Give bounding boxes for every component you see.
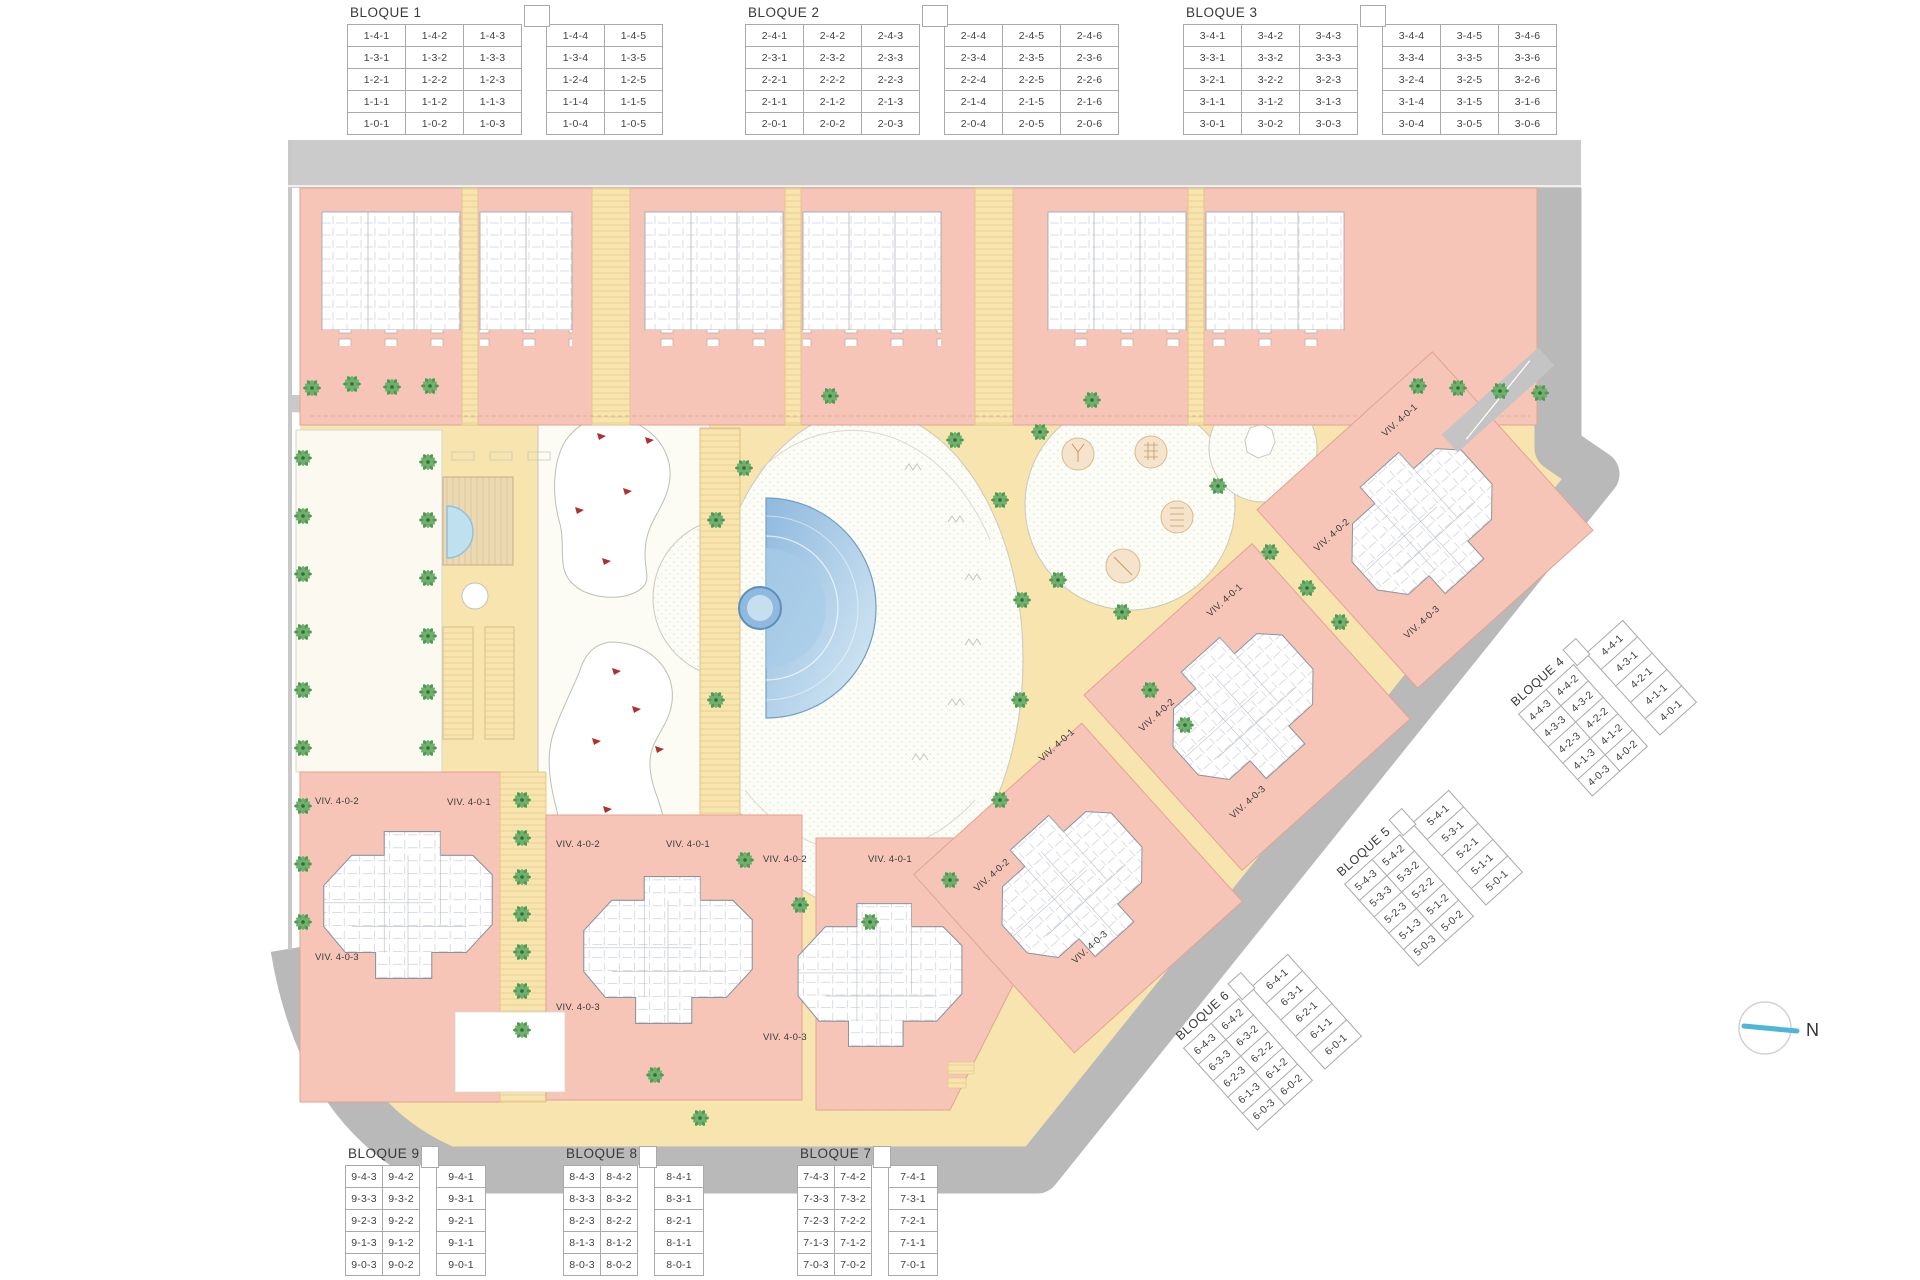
unit-table-row: 1-3-11-3-21-3-31-3-41-3-5: [348, 47, 663, 69]
legend-table-bloque-2: BLOQUE 22-4-12-4-22-4-32-4-42-4-52-4-62-…: [745, 5, 1119, 135]
unit-cell: 2-3-6: [1061, 47, 1119, 69]
unit-cell: 3-4-3: [1300, 25, 1358, 47]
unit-cell: 2-2-2: [804, 69, 862, 91]
unit-table-row: 7-2-37-2-27-2-1: [798, 1210, 938, 1232]
unit-cell: 2-1-6: [1061, 91, 1119, 113]
unit-cell: 3-1-2: [1242, 91, 1300, 113]
unit-table: 7-4-37-4-27-4-17-3-37-3-27-3-17-2-37-2-2…: [797, 1165, 938, 1276]
gap-cell: [638, 1210, 655, 1232]
unit-cell: 2-2-5: [1003, 69, 1061, 91]
unit-cell: 3-1-1: [1184, 91, 1242, 113]
viv-label: VIV. 4-0-2: [556, 839, 600, 850]
legend-gap-box: [873, 1146, 891, 1168]
unit-cell: 8-4-1: [655, 1166, 704, 1188]
unit-cell: 3-0-3: [1300, 113, 1358, 135]
unit-cell: 3-4-6: [1499, 25, 1557, 47]
unit-table-row: 9-1-39-1-29-1-1: [346, 1232, 486, 1254]
unit-cell: 9-4-2: [383, 1166, 420, 1188]
unit-cell: 1-4-3: [464, 25, 522, 47]
unit-table-row: 8-1-38-1-28-1-1: [564, 1232, 704, 1254]
unit-cell: 3-4-5: [1441, 25, 1499, 47]
unit-cell: 7-1-1: [889, 1232, 938, 1254]
unit-cell: 7-3-3: [798, 1188, 835, 1210]
unit-cell: 2-4-4: [945, 25, 1003, 47]
unit-cell: 3-3-2: [1242, 47, 1300, 69]
unit-cell: 7-3-2: [835, 1188, 872, 1210]
unit-table-row: 1-1-11-1-21-1-31-1-41-1-5: [348, 91, 663, 113]
unit-cell: 1-2-3: [464, 69, 522, 91]
unit-table: 1-4-11-4-21-4-31-4-41-4-51-3-11-3-21-3-3…: [347, 24, 663, 135]
gap-cell: [920, 91, 945, 113]
gap-cell: [920, 25, 945, 47]
unit-table-row: 8-3-38-3-28-3-1: [564, 1188, 704, 1210]
unit-table-row: 7-1-37-1-27-1-1: [798, 1232, 938, 1254]
unit-cell: 3-0-5: [1441, 113, 1499, 135]
unit-table-row: 3-3-13-3-23-3-33-3-43-3-53-3-6: [1184, 47, 1557, 69]
townhouse-band: [300, 188, 1537, 425]
unit-cell: 1-1-2: [406, 91, 464, 113]
unit-cell: 2-4-6: [1061, 25, 1119, 47]
unit-cell: 2-0-2: [804, 113, 862, 135]
gap-cell: [420, 1254, 437, 1276]
unit-table-row: 7-0-37-0-27-0-1: [798, 1254, 938, 1276]
unit-cell: 2-1-2: [804, 91, 862, 113]
unit-cell: 9-3-2: [383, 1188, 420, 1210]
unit-table-row: 2-2-12-2-22-2-32-2-42-2-52-2-6: [746, 69, 1119, 91]
unit-cell: 7-0-2: [835, 1254, 872, 1276]
unit-cell: 1-4-4: [547, 25, 605, 47]
gap-cell: [522, 113, 547, 135]
unit-cell: 7-3-1: [889, 1188, 938, 1210]
unit-cell: 3-0-2: [1242, 113, 1300, 135]
unit-cell: 3-3-4: [1383, 47, 1441, 69]
unit-cell: 3-2-4: [1383, 69, 1441, 91]
unit-cell: 7-4-1: [889, 1166, 938, 1188]
unit-cell: 2-4-5: [1003, 25, 1061, 47]
unit-cell: 1-3-2: [406, 47, 464, 69]
unit-cell: 8-4-3: [564, 1166, 601, 1188]
unit-cell: 1-2-1: [348, 69, 406, 91]
unit-table: 3-4-13-4-23-4-33-4-43-4-53-4-63-3-13-3-2…: [1183, 24, 1557, 135]
unit-cell: 2-1-1: [746, 91, 804, 113]
unit-table-row: 2-0-12-0-22-0-32-0-42-0-52-0-6: [746, 113, 1119, 135]
gap-cell: [638, 1232, 655, 1254]
unit-cell: 3-1-6: [1499, 91, 1557, 113]
unit-table-row: 7-3-37-3-27-3-1: [798, 1188, 938, 1210]
unit-cell: 9-2-1: [437, 1210, 486, 1232]
viv-label: VIV. 4-0-3: [315, 952, 359, 963]
unit-cell: 8-0-2: [601, 1254, 638, 1276]
unit-table-row: 3-1-13-1-23-1-33-1-43-1-53-1-6: [1184, 91, 1557, 113]
unit-cell: 2-4-2: [804, 25, 862, 47]
unit-table-row: 9-4-39-4-29-4-1: [346, 1166, 486, 1188]
unit-cell: 1-0-2: [406, 113, 464, 135]
unit-cell: 9-3-3: [346, 1188, 383, 1210]
unit-cell: 1-1-5: [605, 91, 663, 113]
unit-cell: 3-2-2: [1242, 69, 1300, 91]
gap-cell: [522, 69, 547, 91]
unit-cell: 3-0-1: [1184, 113, 1242, 135]
legend-gap-box: [922, 5, 948, 27]
unit-table-row: 8-2-38-2-28-2-1: [564, 1210, 704, 1232]
unit-cell: 2-0-1: [746, 113, 804, 135]
unit-table-row: 1-2-11-2-21-2-31-2-41-2-5: [348, 69, 663, 91]
unit-table-row: 7-4-37-4-27-4-1: [798, 1166, 938, 1188]
unit-cell: 9-1-1: [437, 1232, 486, 1254]
gap-cell: [420, 1188, 437, 1210]
unit-cell: 9-0-2: [383, 1254, 420, 1276]
unit-cell: 1-3-1: [348, 47, 406, 69]
unit-cell: 7-0-1: [889, 1254, 938, 1276]
gap-cell: [638, 1254, 655, 1276]
unit-cell: 2-3-3: [862, 47, 920, 69]
unit-table-row: 3-0-13-0-23-0-33-0-43-0-53-0-6: [1184, 113, 1557, 135]
viv-label: VIV. 4-0-2: [763, 854, 807, 865]
gap-cell: [872, 1210, 889, 1232]
unit-table-row: 8-4-38-4-28-4-1: [564, 1166, 704, 1188]
unit-cell: 1-4-1: [348, 25, 406, 47]
unit-cell: 3-1-5: [1441, 91, 1499, 113]
unit-table-row: 2-3-12-3-22-3-32-3-42-3-52-3-6: [746, 47, 1119, 69]
gap-cell: [872, 1166, 889, 1188]
legend-table-bloque-9: BLOQUE 99-4-39-4-29-4-19-3-39-3-29-3-19-…: [345, 1146, 486, 1276]
gap-cell: [420, 1232, 437, 1254]
unit-cell: 7-2-2: [835, 1210, 872, 1232]
gap-cell: [522, 25, 547, 47]
unit-cell: 2-0-6: [1061, 113, 1119, 135]
unit-cell: 1-0-3: [464, 113, 522, 135]
unit-cell: 7-0-3: [798, 1254, 835, 1276]
unit-cell: 2-1-5: [1003, 91, 1061, 113]
unit-cell: 9-0-3: [346, 1254, 383, 1276]
gap-cell: [420, 1210, 437, 1232]
unit-table: 8-4-38-4-28-4-18-3-38-3-28-3-18-2-38-2-2…: [563, 1165, 704, 1276]
unit-cell: 9-4-3: [346, 1166, 383, 1188]
unit-cell: 9-4-1: [437, 1166, 486, 1188]
legend-gap-box: [524, 5, 550, 27]
unit-cell: 3-2-1: [1184, 69, 1242, 91]
unit-cell: 3-2-3: [1300, 69, 1358, 91]
unit-cell: 1-0-4: [547, 113, 605, 135]
viv-label: VIV. 4-0-2: [315, 796, 359, 807]
unit-cell: 3-3-5: [1441, 47, 1499, 69]
pergola-2: [485, 627, 514, 739]
unit-cell: 1-4-2: [406, 25, 464, 47]
unit-cell: 9-3-1: [437, 1188, 486, 1210]
unit-table-row: 3-2-13-2-23-2-33-2-43-2-53-2-6: [1184, 69, 1557, 91]
unit-cell: 8-0-3: [564, 1254, 601, 1276]
unit-cell: 3-4-4: [1383, 25, 1441, 47]
unit-cell: 7-4-3: [798, 1166, 835, 1188]
unit-table-row: 1-4-11-4-21-4-31-4-41-4-5: [348, 25, 663, 47]
gap-cell: [872, 1254, 889, 1276]
unit-cell: 9-2-2: [383, 1210, 420, 1232]
unit-cell: 1-0-1: [348, 113, 406, 135]
north-indicator: N: [1739, 1002, 1819, 1054]
unit-cell: 1-2-4: [547, 69, 605, 91]
viv-label: VIV. 4-0-1: [666, 839, 710, 850]
gap-cell: [872, 1232, 889, 1254]
gap-cell: [638, 1166, 655, 1188]
gap-cell: [920, 113, 945, 135]
unit-cell: 8-3-2: [601, 1188, 638, 1210]
gap-cell: [522, 91, 547, 113]
unit-cell: 2-4-1: [746, 25, 804, 47]
unit-cell: 9-2-3: [346, 1210, 383, 1232]
unit-cell: 2-3-4: [945, 47, 1003, 69]
unit-cell: 1-3-5: [605, 47, 663, 69]
gap-cell: [920, 69, 945, 91]
unit-cell: 8-4-2: [601, 1166, 638, 1188]
unit-table-row: 9-0-39-0-29-0-1: [346, 1254, 486, 1276]
gap-cell: [1358, 69, 1383, 91]
unit-cell: 9-0-1: [437, 1254, 486, 1276]
pavilion: [1245, 424, 1275, 458]
unit-cell: 3-3-6: [1499, 47, 1557, 69]
unit-cell: 1-1-1: [348, 91, 406, 113]
unit-cell: 2-2-3: [862, 69, 920, 91]
unit-cell: 1-4-5: [605, 25, 663, 47]
north-label: N: [1806, 1020, 1819, 1040]
gap-cell: [420, 1166, 437, 1188]
unit-cell: 1-3-4: [547, 47, 605, 69]
unit-cell: 8-3-3: [564, 1188, 601, 1210]
gap-cell: [1358, 25, 1383, 47]
gap-cell: [522, 47, 547, 69]
legend-table-bloque-8: BLOQUE 88-4-38-4-28-4-18-3-38-3-28-3-18-…: [563, 1146, 704, 1276]
viv-label: VIV. 4-0-1: [868, 854, 912, 865]
gap-cell: [872, 1188, 889, 1210]
unit-table-row: 1-0-11-0-21-0-31-0-41-0-5: [348, 113, 663, 135]
unit-cell: 7-1-2: [835, 1232, 872, 1254]
unit-table-row: 9-2-39-2-29-2-1: [346, 1210, 486, 1232]
unit-cell: 8-2-2: [601, 1210, 638, 1232]
unit-cell: 3-2-6: [1499, 69, 1557, 91]
unit-table-row: 2-4-12-4-22-4-32-4-42-4-52-4-6: [746, 25, 1119, 47]
block-table-title: BLOQUE 7: [800, 1146, 938, 1161]
unit-cell: 7-1-3: [798, 1232, 835, 1254]
legend-table-bloque-1: BLOQUE 11-4-11-4-21-4-31-4-41-4-51-3-11-…: [347, 5, 663, 135]
unit-cell: 2-0-3: [862, 113, 920, 135]
unit-cell: 9-1-2: [383, 1232, 420, 1254]
gap-cell: [1358, 91, 1383, 113]
legend-table-bloque-3: BLOQUE 33-4-13-4-23-4-33-4-43-4-53-4-63-…: [1183, 5, 1557, 135]
gap-cell: [920, 47, 945, 69]
unit-cell: 1-1-3: [464, 91, 522, 113]
unit-table-row: 9-3-39-3-29-3-1: [346, 1188, 486, 1210]
legend-gap-box: [639, 1146, 657, 1168]
viv-label: VIV. 4-0-3: [556, 1002, 600, 1013]
gap-cell: [1358, 113, 1383, 135]
block-table-title: BLOQUE 8: [566, 1146, 704, 1161]
unit-cell: 3-1-4: [1383, 91, 1441, 113]
fountain-small: [462, 583, 488, 609]
unit-cell: 2-3-5: [1003, 47, 1061, 69]
unit-cell: 8-1-3: [564, 1232, 601, 1254]
unit-cell: 1-0-5: [605, 113, 663, 135]
unit-cell: 8-2-3: [564, 1210, 601, 1232]
unit-cell: 3-0-4: [1383, 113, 1441, 135]
unit-cell: 7-2-1: [889, 1210, 938, 1232]
unit-table-row: 8-0-38-0-28-0-1: [564, 1254, 704, 1276]
unit-cell: 2-3-2: [804, 47, 862, 69]
unit-cell: 3-4-1: [1184, 25, 1242, 47]
unit-table-row: 2-1-12-1-22-1-32-1-42-1-52-1-6: [746, 91, 1119, 113]
unit-cell: 8-3-1: [655, 1188, 704, 1210]
unit-cell: 3-3-3: [1300, 47, 1358, 69]
unit-cell: 8-1-2: [601, 1232, 638, 1254]
unit-cell: 3-0-6: [1499, 113, 1557, 135]
unit-cell: 8-2-1: [655, 1210, 704, 1232]
unit-cell: 1-2-5: [605, 69, 663, 91]
unit-cell: 3-2-5: [1441, 69, 1499, 91]
block-table-title: BLOQUE 1: [350, 5, 663, 20]
unit-cell: 7-2-3: [798, 1210, 835, 1232]
unit-cell: 1-2-2: [406, 69, 464, 91]
unit-cell: 1-1-4: [547, 91, 605, 113]
unit-cell: 3-3-1: [1184, 47, 1242, 69]
pergola-1: [443, 627, 473, 739]
unit-cell: 3-4-2: [1242, 25, 1300, 47]
legend-gap-box: [1360, 5, 1386, 27]
unit-cell: 2-2-6: [1061, 69, 1119, 91]
unit-table-row: 3-4-13-4-23-4-33-4-43-4-53-4-6: [1184, 25, 1557, 47]
unit-table: 2-4-12-4-22-4-32-4-42-4-52-4-62-3-12-3-2…: [745, 24, 1119, 135]
unit-cell: 8-1-1: [655, 1232, 704, 1254]
unit-cell: 2-1-3: [862, 91, 920, 113]
unit-cell: 8-0-1: [655, 1254, 704, 1276]
viv-label: VIV. 4-0-1: [447, 797, 491, 808]
unit-cell: 1-3-3: [464, 47, 522, 69]
legend-gap-box: [421, 1146, 439, 1168]
unit-cell: 2-4-3: [862, 25, 920, 47]
unit-cell: 2-3-1: [746, 47, 804, 69]
legend-table-bloque-7: BLOQUE 77-4-37-4-27-4-17-3-37-3-27-3-17-…: [797, 1146, 938, 1276]
unit-cell: 3-1-3: [1300, 91, 1358, 113]
gap-cell: [638, 1188, 655, 1210]
gap-cell: [1358, 47, 1383, 69]
viv-label: VIV. 4-0-3: [763, 1032, 807, 1043]
block-table-title: BLOQUE 9: [348, 1146, 486, 1161]
unit-cell: 2-1-4: [945, 91, 1003, 113]
road-top: [288, 140, 1581, 188]
unit-table: 9-4-39-4-29-4-19-3-39-3-29-3-19-2-39-2-2…: [345, 1165, 486, 1276]
unit-cell: 2-0-4: [945, 113, 1003, 135]
unit-cell: 2-2-1: [746, 69, 804, 91]
unit-cell: 2-0-5: [1003, 113, 1061, 135]
unit-cell: 9-1-3: [346, 1232, 383, 1254]
unit-cell: 2-2-4: [945, 69, 1003, 91]
unit-cell: 7-4-2: [835, 1166, 872, 1188]
